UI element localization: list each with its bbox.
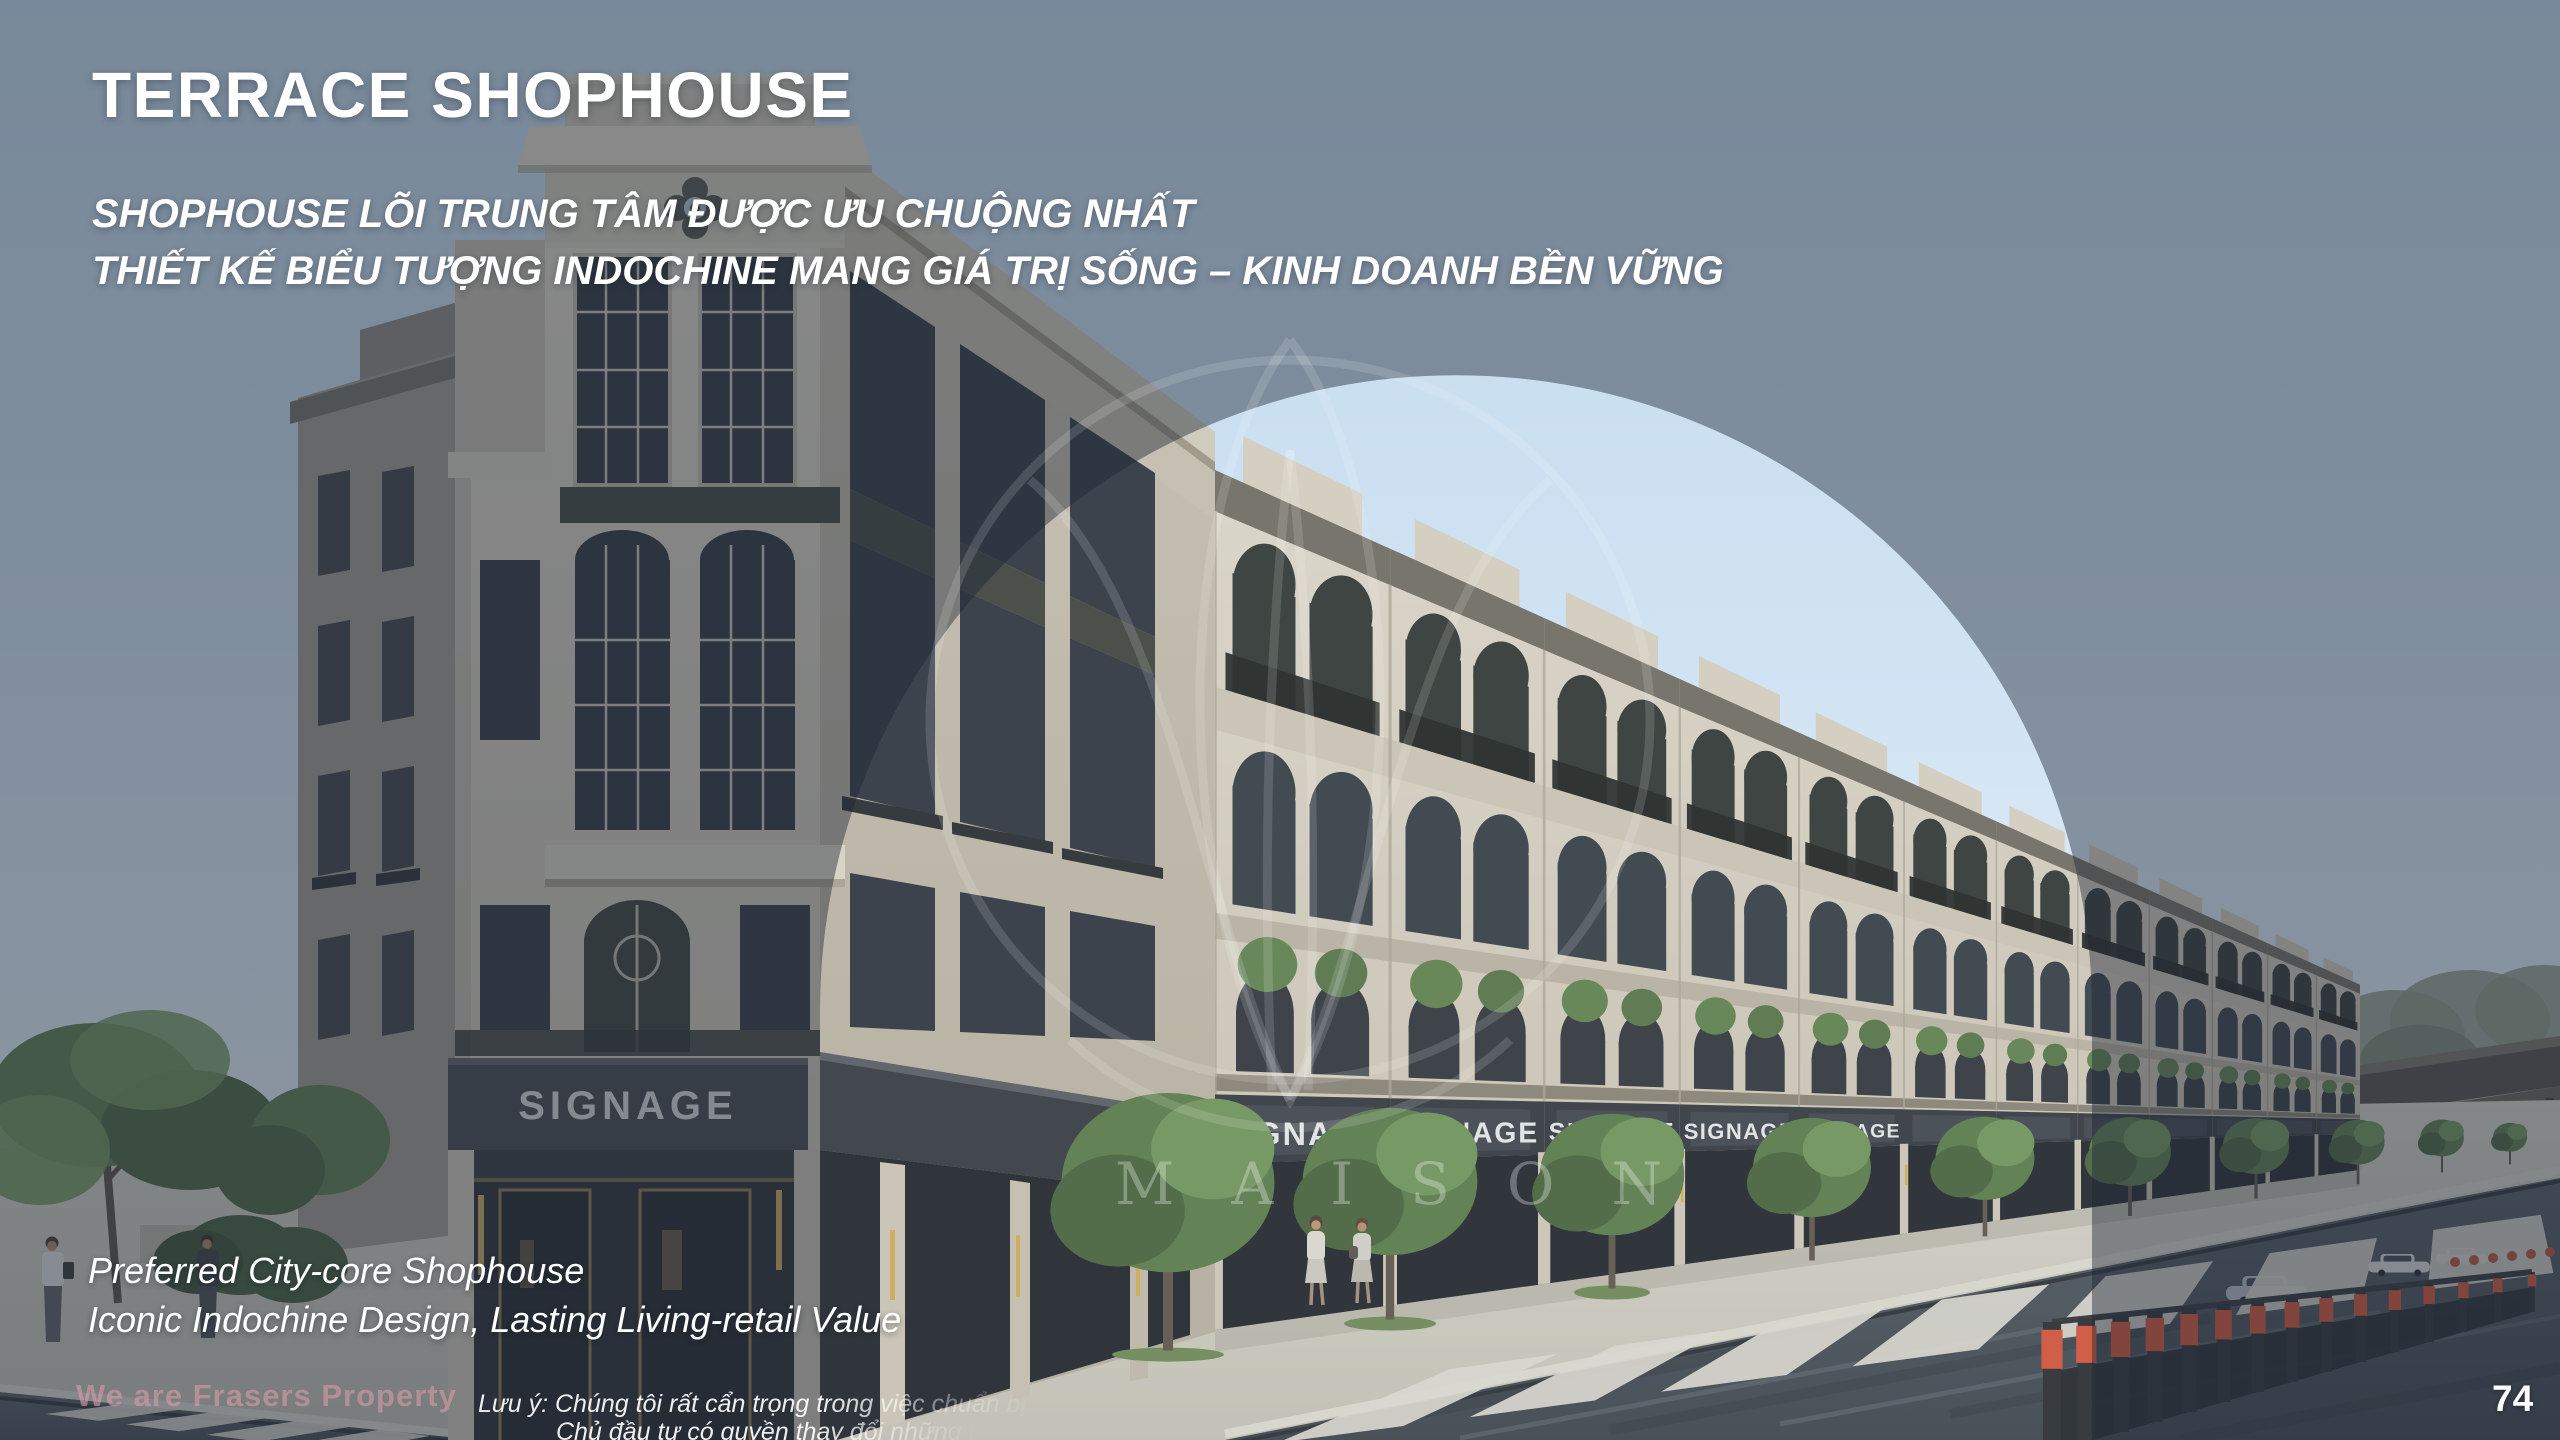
tagline-line-1: Preferred City-core Shophouse [88,1246,901,1295]
page-number: 74 [2492,1378,2533,1420]
frasers-watermark: We are Frasers Property [76,1378,457,1414]
subtitle-line-2: THIẾT KẾ BIỂU TƯỢNG INDOCHINE MANG GIÁ T… [92,243,1724,300]
disclaimer-line-2: Chủ đầu tư có quyền thay đổi những thô [556,1418,1003,1440]
tagline-line-2: Iconic Indochine Design, Lasting Living-… [88,1295,901,1344]
subtitle-line-1: SHOPHOUSE LÕI TRUNG TÂM ĐƯỢC ƯU CHUỘNG N… [92,186,1724,243]
disclaimer-line-1: Lưu ý: Chúng tôi rất cẩn trọng trong việ… [478,1390,1072,1419]
maison-watermark-text: MAISON [1115,1150,1719,1218]
presentation-slide: SIGNAGESIGNAGESIGNAGESIGNAGESIGNAGE [0,0,2560,1440]
tagline: Preferred City-core Shophouse Iconic Ind… [88,1246,901,1344]
page-title: TERRACE SHOPHOUSE [92,58,854,132]
subtitle: SHOPHOUSE LÕI TRUNG TÂM ĐƯỢC ƯU CHUỘNG N… [92,186,1724,300]
